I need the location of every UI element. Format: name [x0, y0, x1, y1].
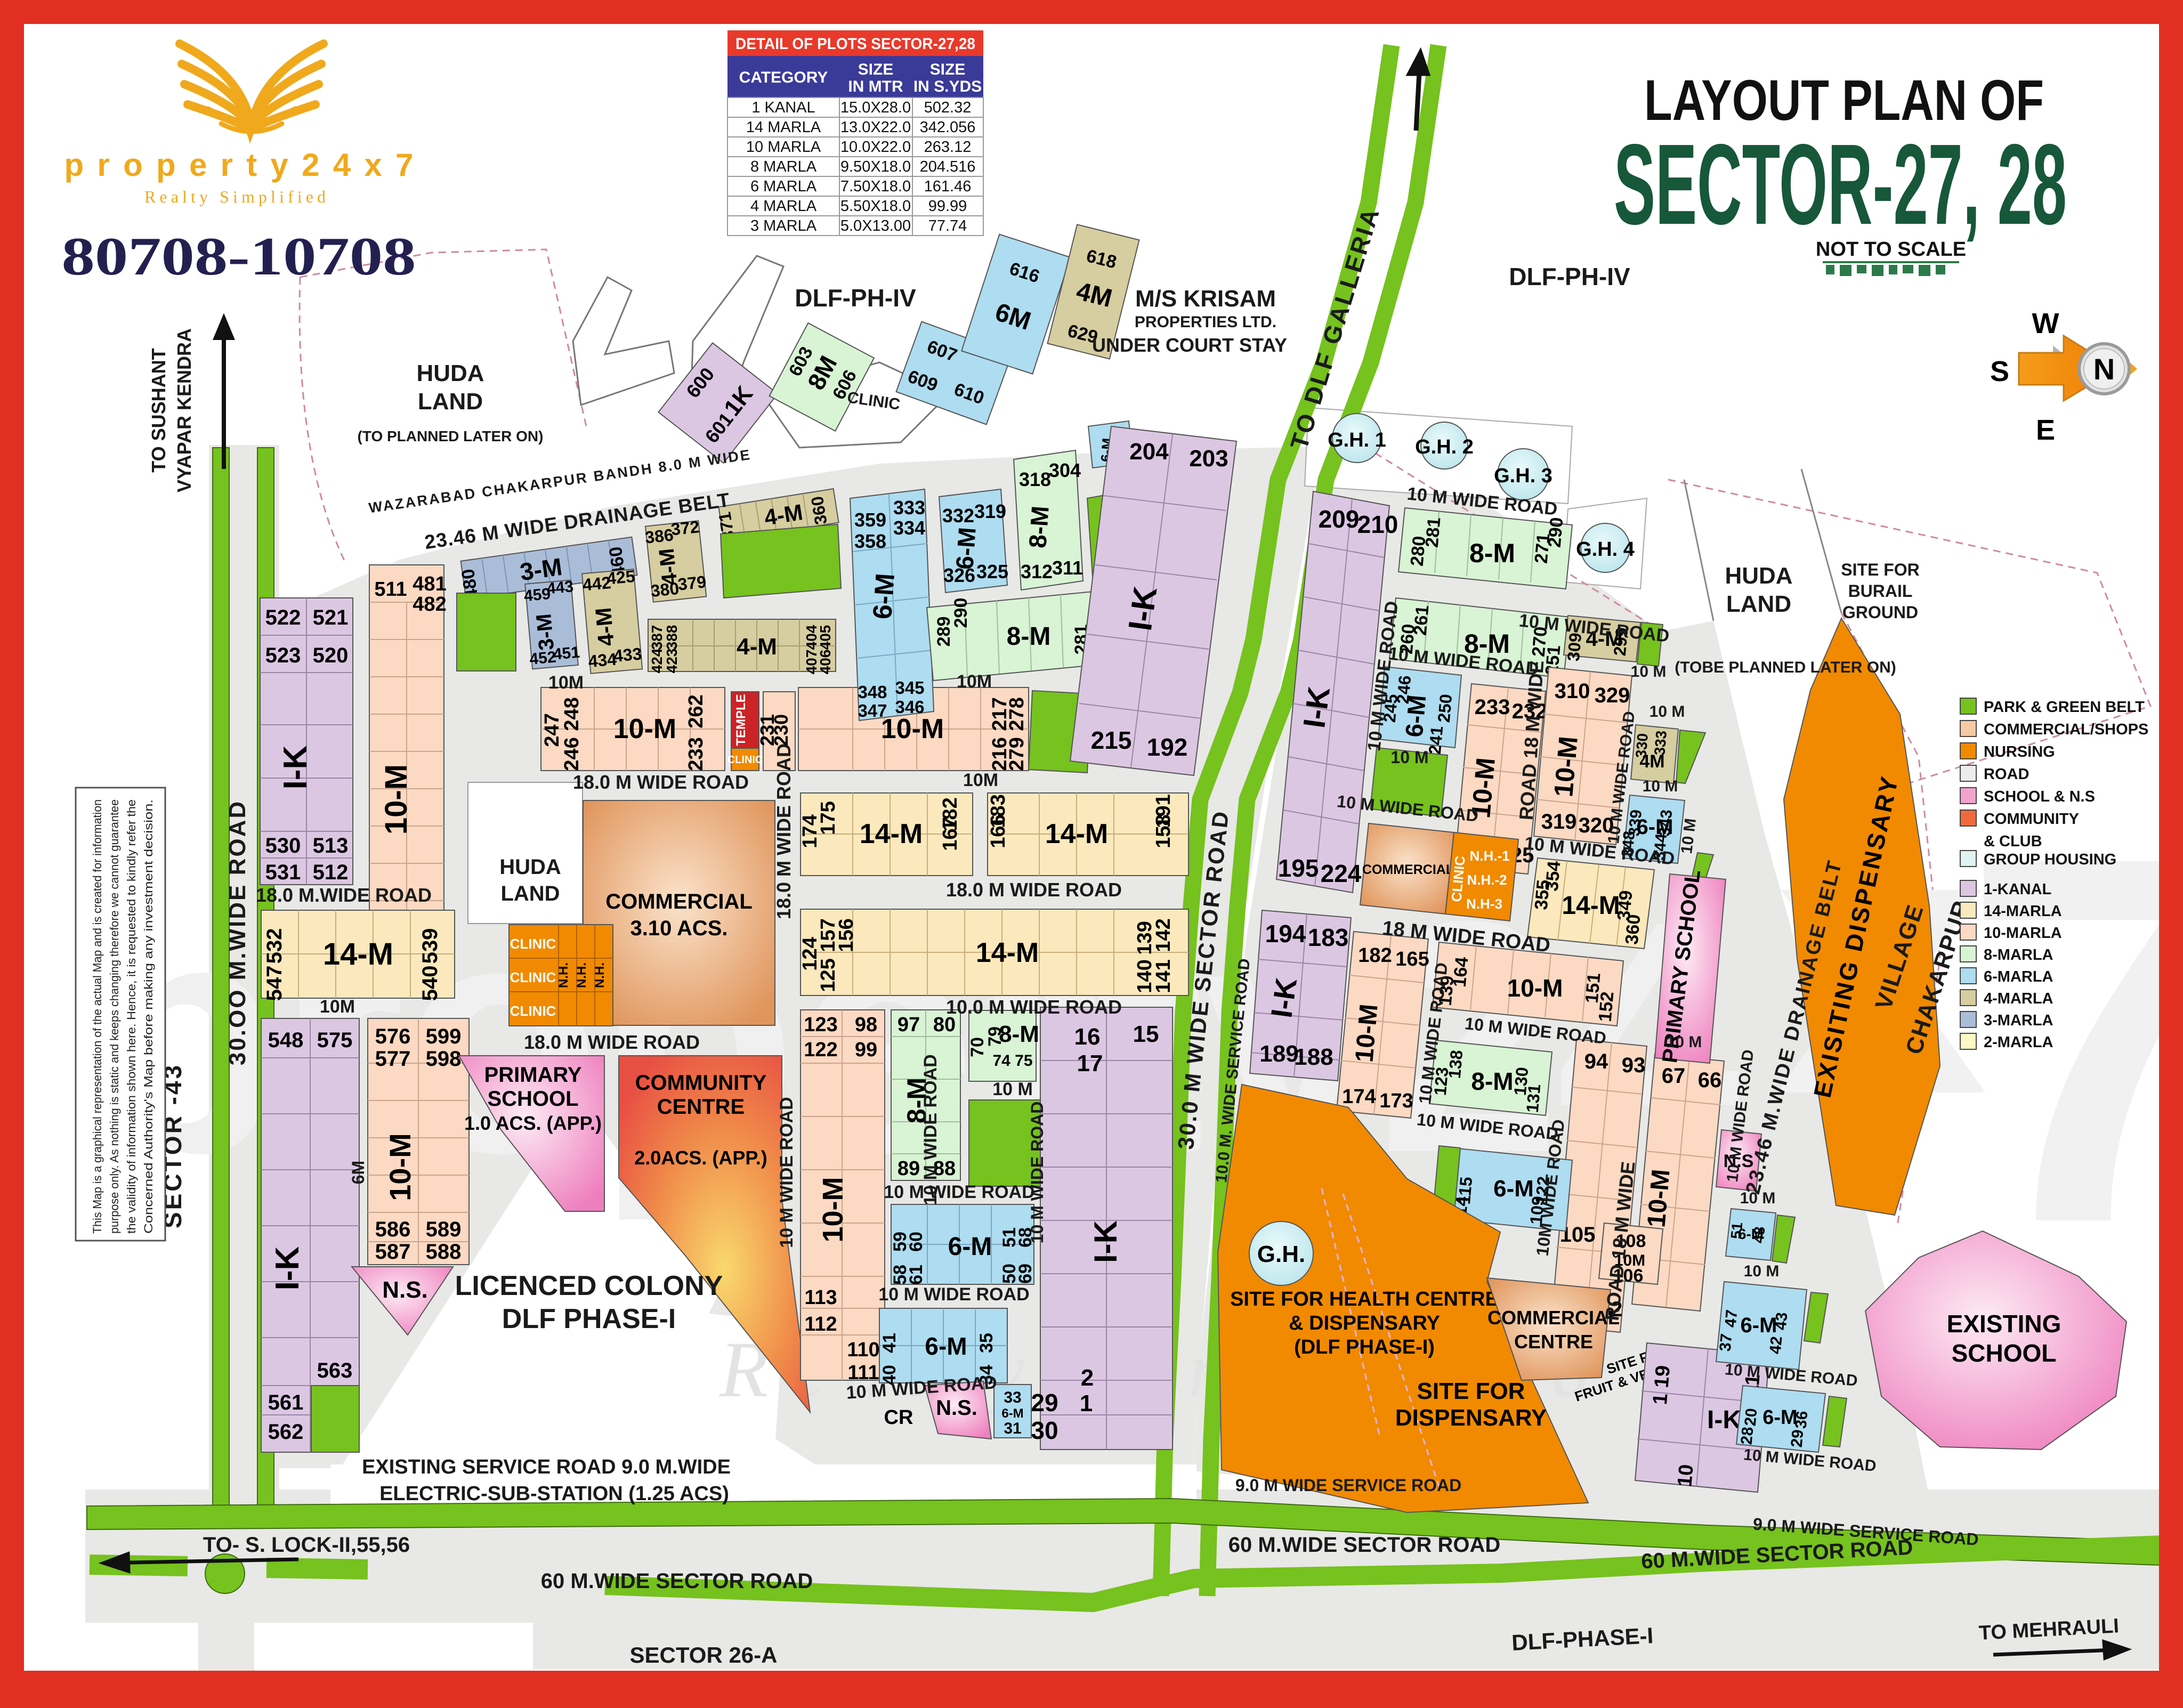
svg-text:3.10 ACS.: 3.10 ACS.: [630, 917, 727, 940]
svg-text:372: 372: [670, 517, 700, 539]
svg-text:174: 174: [1342, 1086, 1376, 1108]
svg-text:587: 587: [375, 1240, 411, 1264]
svg-text:380: 380: [650, 579, 680, 601]
svg-text:189: 189: [1259, 1041, 1298, 1067]
svg-text:93: 93: [1622, 1054, 1646, 1077]
svg-text:COMMERCIAL/SHOPS: COMMERCIAL/SHOPS: [1984, 721, 2148, 738]
svg-text:6-M: 6-M: [1001, 1406, 1023, 1421]
svg-text:purpose only. As nothing is st: purpose only. As nothing is static and k…: [108, 799, 121, 1234]
svg-text:18.0 M WIDE ROAD: 18.0 M WIDE ROAD: [573, 771, 749, 793]
svg-text:406: 406: [817, 650, 834, 675]
svg-text:LAND: LAND: [418, 388, 483, 415]
svg-text:386: 386: [644, 525, 674, 547]
svg-text:588: 588: [426, 1240, 462, 1264]
svg-text:HUDA: HUDA: [416, 360, 484, 386]
svg-text:10 M: 10 M: [1744, 1262, 1780, 1280]
svg-text:N.S.: N.S.: [382, 1277, 428, 1303]
svg-text:575: 575: [317, 1029, 353, 1052]
svg-text:513: 513: [313, 834, 349, 857]
svg-text:8-M: 8-M: [999, 1021, 1039, 1047]
svg-text:530: 530: [265, 834, 301, 857]
svg-text:599: 599: [426, 1025, 462, 1048]
svg-text:8-M: 8-M: [1469, 538, 1515, 568]
svg-text:164: 164: [1450, 956, 1473, 988]
svg-text:UNDER COURT STAY: UNDER COURT STAY: [1092, 334, 1287, 356]
svg-text:311: 311: [1052, 557, 1083, 579]
svg-text:29: 29: [1031, 1389, 1058, 1416]
svg-text:8-MARLA: 8-MARLA: [1984, 946, 2053, 964]
svg-text:& DISPENSARY: & DISPENSARY: [1289, 1312, 1440, 1334]
svg-text:99.99: 99.99: [928, 198, 967, 215]
svg-text:523: 523: [265, 644, 301, 667]
svg-text:29: 29: [1788, 1429, 1807, 1448]
svg-text:ELECTRIC-SUB-STATION (1.25 ACS: ELECTRIC-SUB-STATION (1.25 ACS): [379, 1483, 729, 1505]
svg-text:188: 188: [1294, 1044, 1333, 1070]
svg-text:347: 347: [858, 701, 887, 721]
svg-text:4-MARLA: 4-MARLA: [1984, 990, 2053, 1007]
svg-text:215: 215: [1091, 726, 1132, 754]
svg-text:10 MARLA: 10 MARLA: [746, 139, 821, 156]
svg-text:1 19: 1 19: [1649, 1364, 1675, 1405]
svg-text:405: 405: [817, 625, 834, 650]
svg-text:194: 194: [1265, 920, 1306, 948]
svg-text:DETAIL OF PLOTS SECTOR-27,28: DETAIL OF PLOTS SECTOR-27,28: [735, 35, 975, 53]
svg-text:246: 246: [561, 737, 583, 771]
svg-text:14-M: 14-M: [976, 937, 1039, 968]
svg-text:2: 2: [1081, 1365, 1094, 1391]
svg-text:30.OO M.WIDE ROAD: 30.OO M.WIDE ROAD: [224, 800, 250, 1065]
svg-text:15: 15: [1133, 1021, 1159, 1047]
svg-text:539: 539: [418, 928, 442, 964]
svg-text:SIZE: SIZE: [930, 61, 966, 78]
svg-text:(DLF PHASE-I): (DLF PHASE-I): [1294, 1336, 1435, 1358]
svg-text:I-K: I-K: [269, 1246, 306, 1290]
svg-text:123: 123: [804, 1014, 837, 1036]
svg-text:14-MARLA: 14-MARLA: [1984, 903, 2062, 920]
svg-text:175: 175: [817, 801, 839, 835]
svg-text:511: 511: [374, 578, 407, 601]
svg-text:SITE FOR: SITE FOR: [1841, 560, 1920, 579]
svg-text:262: 262: [685, 694, 707, 728]
svg-text:89: 89: [898, 1157, 920, 1180]
svg-text:SIZE: SIZE: [858, 61, 894, 78]
svg-text:342.056: 342.056: [920, 119, 976, 136]
svg-text:BURAIL: BURAIL: [1848, 581, 1913, 601]
svg-text:LAND: LAND: [1726, 591, 1791, 617]
svg-text:99: 99: [855, 1039, 877, 1061]
svg-text:358: 358: [854, 530, 886, 552]
svg-text:548: 548: [268, 1029, 304, 1052]
svg-text:346: 346: [895, 697, 924, 717]
svg-text:6-M: 6-M: [948, 1233, 992, 1261]
svg-text:512: 512: [313, 861, 349, 884]
svg-text:10-M: 10-M: [383, 1133, 417, 1201]
svg-text:28: 28: [1738, 1426, 1757, 1445]
svg-text:69: 69: [1015, 1264, 1036, 1284]
svg-text:586: 586: [375, 1218, 411, 1241]
svg-text:36: 36: [1792, 1410, 1812, 1429]
svg-text:156: 156: [835, 918, 858, 952]
svg-text:520: 520: [313, 644, 349, 667]
svg-text:G.H.: G.H.: [1257, 1241, 1305, 1267]
svg-text:204.516: 204.516: [920, 158, 976, 175]
svg-text:5.0X13.00: 5.0X13.00: [840, 217, 911, 234]
svg-text:561: 561: [268, 1391, 304, 1414]
svg-text:I-K: I-K: [1122, 584, 1165, 633]
svg-text:531: 531: [265, 861, 301, 884]
svg-text:10 M WIDE ROAD: 10 M WIDE ROAD: [878, 1284, 1029, 1305]
svg-text:279: 279: [1006, 737, 1028, 771]
svg-text:332: 332: [942, 505, 974, 527]
svg-text:354: 354: [1542, 860, 1565, 892]
svg-text:94: 94: [1584, 1050, 1608, 1073]
svg-text:HUDA: HUDA: [499, 855, 561, 879]
svg-text:318: 318: [1019, 468, 1051, 490]
svg-text:10.0X22.0: 10.0X22.0: [840, 139, 911, 156]
svg-text:333: 333: [893, 497, 925, 519]
svg-text:278: 278: [1006, 697, 1028, 731]
svg-text:10M: 10M: [548, 673, 584, 693]
svg-text:319: 319: [1541, 810, 1577, 833]
svg-text:522: 522: [265, 606, 301, 629]
svg-text:DLF PHASE-I: DLF PHASE-I: [502, 1304, 676, 1334]
svg-text:203: 203: [1189, 446, 1228, 472]
svg-text:329: 329: [1595, 684, 1630, 707]
svg-text:DISPENSARY: DISPENSARY: [1395, 1405, 1547, 1431]
svg-text:423: 423: [664, 649, 680, 674]
svg-text:248: 248: [561, 697, 583, 731]
svg-text:IN MTR: IN MTR: [848, 78, 903, 95]
svg-text:10-M: 10-M: [817, 1177, 849, 1242]
svg-text:4-M: 4-M: [737, 634, 777, 660]
svg-text:CLINIC: CLINIC: [510, 1003, 556, 1019]
svg-text:SECTOR-27, 28: SECTOR-27, 28: [1614, 120, 2067, 248]
svg-text:191: 191: [1152, 794, 1175, 828]
svg-text:N.S.: N.S.: [936, 1396, 977, 1420]
svg-text:10-M: 10-M: [881, 714, 944, 744]
svg-text:I-K: I-K: [277, 745, 314, 789]
svg-text:NURSING: NURSING: [1984, 743, 2055, 760]
svg-text:42: 42: [1767, 1335, 1786, 1355]
svg-text:598: 598: [426, 1047, 462, 1071]
svg-text:14-M: 14-M: [860, 819, 923, 849]
svg-text:M/S KRISAM: M/S KRISAM: [1135, 286, 1276, 312]
svg-text:the validity of information sh: the validity of information shown here. …: [125, 799, 138, 1234]
svg-text:451: 451: [552, 644, 580, 663]
svg-text:261: 261: [1410, 604, 1433, 636]
svg-text:TEMPLE: TEMPLE: [734, 694, 748, 746]
svg-text:E: E: [2036, 414, 2055, 446]
svg-text:G.H. 3: G.H. 3: [1494, 465, 1553, 487]
svg-text:8-M: 8-M: [1023, 505, 1054, 549]
svg-text:443: 443: [546, 578, 575, 597]
svg-text:10-M: 10-M: [1507, 974, 1563, 1002]
svg-text:(TOBE PLANNED LATER ON): (TOBE PLANNED LATER ON): [1675, 659, 1896, 676]
svg-text:481: 481: [413, 573, 446, 595]
svg-text:4-M: 4-M: [591, 606, 619, 647]
svg-text:HUDA: HUDA: [1725, 563, 1792, 589]
svg-text:312: 312: [1021, 561, 1053, 582]
svg-text:14 MARLA: 14 MARLA: [746, 119, 821, 136]
svg-text:502.32: 502.32: [924, 99, 972, 116]
svg-text:113: 113: [804, 1286, 837, 1309]
svg-text:250: 250: [1434, 693, 1456, 723]
svg-text:334: 334: [893, 517, 925, 539]
svg-text:131: 131: [1523, 1083, 1545, 1113]
svg-text:61: 61: [906, 1265, 926, 1285]
svg-text:N.H.: N.H.: [575, 962, 589, 988]
svg-text:10-M: 10-M: [613, 714, 676, 744]
svg-text:3-MARLA: 3-MARLA: [1984, 1012, 2053, 1029]
svg-text:425: 425: [606, 566, 636, 588]
svg-text:10M: 10M: [963, 770, 998, 790]
svg-text:SCHOOL & N.S: SCHOOL & N.S: [1984, 788, 2095, 805]
svg-text:173: 173: [1379, 1090, 1413, 1112]
svg-text:210: 210: [1357, 511, 1398, 538]
svg-text:161.46: 161.46: [924, 178, 972, 195]
svg-text:360: 360: [1622, 913, 1645, 945]
svg-text:263.12: 263.12: [924, 139, 972, 156]
svg-text:47: 47: [1722, 1309, 1741, 1328]
svg-text:SECTOR 26-A: SECTOR 26-A: [630, 1642, 778, 1667]
svg-text:35: 35: [976, 1333, 997, 1353]
svg-text:10M: 10M: [320, 997, 355, 1017]
svg-text:310: 310: [1555, 679, 1590, 703]
svg-text:6 MARLA: 6 MARLA: [750, 178, 817, 195]
svg-text:10-MARLA: 10-MARLA: [1984, 925, 2062, 942]
svg-text:192: 192: [1147, 733, 1188, 761]
svg-text:540: 540: [418, 966, 442, 1001]
svg-text:CR: CR: [884, 1406, 913, 1429]
svg-text:8 MARLA: 8 MARLA: [750, 158, 817, 175]
svg-text:14-M: 14-M: [1562, 892, 1620, 920]
svg-text:13.0X22.0: 13.0X22.0: [840, 119, 911, 136]
svg-text:1.0 ACS. (APP.): 1.0 ACS. (APP.): [464, 1112, 602, 1134]
svg-text:10M: 10M: [957, 671, 992, 692]
svg-text:N.H.: N.H.: [556, 962, 571, 988]
svg-text:SCHOOL: SCHOOL: [487, 1087, 578, 1111]
svg-text:GROUND: GROUND: [1842, 603, 1918, 622]
svg-text:COMMERCIAL: COMMERCIAL: [1362, 862, 1454, 877]
svg-text:37: 37: [1717, 1333, 1736, 1352]
svg-text:14-M: 14-M: [1045, 819, 1108, 849]
svg-text:424: 424: [649, 648, 665, 673]
svg-text:290: 290: [1545, 516, 1567, 548]
svg-text:PROPERTIES LTD.: PROPERTIES LTD.: [1135, 313, 1276, 331]
svg-text:290: 290: [951, 598, 971, 628]
svg-text:8-M: 8-M: [1471, 1067, 1513, 1095]
svg-text:10-M: 10-M: [1642, 1168, 1675, 1229]
svg-text:N: N: [2093, 352, 2115, 386]
svg-text:I-K: I-K: [1264, 976, 1303, 1020]
svg-text:G.H. 1: G.H. 1: [1328, 429, 1386, 451]
svg-text:EXISTING: EXISTING: [1947, 1310, 2061, 1338]
svg-text:CLINIC: CLINIC: [510, 936, 556, 952]
svg-text:10: 10: [1673, 1463, 1698, 1488]
svg-text:343: 343: [1656, 809, 1676, 837]
svg-text:10 M: 10 M: [1390, 748, 1428, 767]
svg-text:This Map is a graphical repres: This Map is a graphical representation o…: [91, 799, 104, 1234]
svg-text:325: 325: [976, 561, 1008, 582]
svg-text:N.H-3: N.H-3: [1466, 896, 1502, 912]
svg-text:Concerned Authority's Map befo: Concerned Authority's Map before making …: [142, 799, 155, 1234]
svg-text:CENTRE: CENTRE: [657, 1095, 745, 1119]
svg-text:TO- S. LOCK-II,55,56: TO- S. LOCK-II,55,56: [203, 1533, 410, 1557]
svg-text:I-K: I-K: [1297, 684, 1337, 730]
svg-text:183: 183: [1308, 924, 1349, 951]
svg-text:10-M: 10-M: [1350, 1003, 1383, 1064]
svg-text:17: 17: [1077, 1050, 1103, 1076]
svg-text:CLINIC: CLINIC: [510, 969, 556, 985]
svg-text:387: 387: [649, 625, 665, 650]
svg-text:10 M WIDE ROAD: 10 M WIDE ROAD: [884, 1182, 1034, 1202]
svg-text:15.0X28.0: 15.0X28.0: [840, 99, 911, 116]
svg-text:230: 230: [770, 714, 792, 746]
svg-text:182: 182: [1358, 944, 1392, 967]
svg-text:433: 433: [612, 644, 642, 666]
svg-text:33: 33: [1004, 1389, 1021, 1406]
svg-text:233: 233: [1475, 695, 1510, 719]
svg-text:2-MARLA: 2-MARLA: [1984, 1034, 2053, 1051]
svg-text:COMMERCIAL: COMMERCIAL: [1487, 1307, 1620, 1329]
svg-text:138: 138: [1445, 1049, 1467, 1079]
svg-text:6-M: 6-M: [1741, 1314, 1777, 1337]
svg-text:3 MARLA: 3 MARLA: [750, 217, 817, 234]
svg-text:10 M: 10 M: [1631, 663, 1667, 681]
svg-text:6-M: 6-M: [925, 1332, 967, 1360]
svg-text:N.H.-2: N.H.-2: [1467, 872, 1507, 888]
svg-text:CATEGORY: CATEGORY: [739, 69, 828, 86]
svg-text:10 M: 10 M: [1740, 1189, 1776, 1207]
svg-text:577: 577: [375, 1047, 411, 1071]
svg-text:10 M: 10 M: [992, 1079, 1033, 1099]
svg-text:43: 43: [1772, 1312, 1791, 1331]
svg-text:41: 41: [879, 1333, 900, 1353]
svg-text:326: 326: [943, 564, 975, 586]
svg-text:10 M: 10 M: [1667, 1033, 1702, 1051]
svg-text:576: 576: [375, 1025, 411, 1048]
svg-text:142: 142: [1152, 918, 1175, 952]
svg-text:204: 204: [1129, 439, 1169, 465]
svg-text:N.H.: N.H.: [593, 962, 607, 988]
svg-text:80708-10708: 80708-10708: [62, 226, 416, 287]
svg-text:563: 563: [317, 1359, 353, 1382]
svg-text:6-MARLA: 6-MARLA: [1984, 968, 2053, 985]
svg-text:16: 16: [1074, 1024, 1101, 1050]
svg-text:(TO PLANNED LATER ON): (TO PLANNED LATER ON): [358, 428, 544, 444]
svg-text:67: 67: [1662, 1064, 1686, 1088]
svg-text:247: 247: [541, 713, 563, 747]
svg-text:521: 521: [313, 606, 349, 629]
svg-text:NOT TO SCALE: NOT TO SCALE: [1816, 238, 1966, 261]
svg-text:98: 98: [855, 1014, 877, 1036]
svg-text:6-M: 6-M: [867, 572, 900, 620]
svg-text:COMMUNITY: COMMUNITY: [635, 1071, 767, 1095]
svg-text:562: 562: [268, 1420, 304, 1444]
svg-text:388: 388: [664, 625, 680, 650]
svg-text:VYAPAR KENDRA: VYAPAR KENDRA: [173, 328, 195, 492]
svg-text:547: 547: [263, 966, 286, 1001]
svg-text:10-M: 10-M: [1548, 735, 1583, 798]
svg-text:6-M: 6-M: [1493, 1176, 1534, 1202]
svg-text:ROAD: ROAD: [1984, 766, 2029, 783]
svg-text:359: 359: [854, 509, 886, 531]
svg-text:74 75: 74 75: [992, 1052, 1032, 1070]
svg-text:GROUP HOUSING: GROUP HOUSING: [1984, 851, 2116, 868]
svg-text:319: 319: [974, 500, 1006, 522]
svg-text:I-K: I-K: [1088, 1220, 1123, 1263]
svg-text:125: 125: [817, 958, 839, 992]
svg-text:348: 348: [858, 682, 887, 702]
svg-text:18.0 M WIDE ROAD: 18.0 M WIDE ROAD: [773, 743, 795, 919]
svg-text:1-KANAL: 1-KANAL: [1984, 881, 2051, 898]
svg-text:20: 20: [1742, 1407, 1761, 1427]
svg-text:CENTRE: CENTRE: [1514, 1331, 1593, 1353]
svg-text:PRIMARY: PRIMARY: [484, 1063, 582, 1087]
svg-text:SITE FOR HEALTH CENTRE: SITE FOR HEALTH CENTRE: [1230, 1288, 1499, 1310]
svg-text:30: 30: [1031, 1416, 1058, 1444]
svg-text:589: 589: [426, 1218, 462, 1241]
svg-text:10.0 M WIDE ROAD: 10.0 M WIDE ROAD: [946, 996, 1122, 1018]
svg-text:EXISTING SERVICE ROAD 9.0 M.WI: EXISTING SERVICE ROAD 9.0 M.WIDE: [362, 1456, 731, 1478]
svg-text:IN S.YDS: IN S.YDS: [913, 78, 982, 95]
svg-text:14-M: 14-M: [323, 937, 393, 972]
svg-text:195: 195: [1278, 854, 1319, 882]
svg-text:& CLUB: & CLUB: [1984, 833, 2042, 850]
svg-text:5.50X18.0: 5.50X18.0: [840, 198, 911, 215]
svg-text:122: 122: [804, 1039, 837, 1061]
svg-text:18.0 M.WIDE ROAD: 18.0 M.WIDE ROAD: [256, 884, 432, 906]
svg-text:66: 66: [1698, 1068, 1722, 1092]
svg-text:PARK & GREEN BELT: PARK & GREEN BELT: [1984, 699, 2145, 716]
svg-text:DLF-PH-IV: DLF-PH-IV: [795, 284, 916, 312]
svg-text:SITE FOR: SITE FOR: [1417, 1378, 1525, 1404]
svg-text:N.H.-1: N.H.-1: [1469, 848, 1509, 864]
svg-text:8-M: 8-M: [1007, 622, 1051, 651]
svg-text:31: 31: [1004, 1420, 1021, 1437]
svg-text:LAND: LAND: [500, 882, 560, 905]
svg-text:4M: 4M: [1639, 751, 1664, 772]
svg-text:379: 379: [677, 572, 707, 594]
svg-text:60 M.WIDE SECTOR ROAD: 60 M.WIDE SECTOR ROAD: [541, 1569, 813, 1593]
svg-text:6M: 6M: [349, 1161, 368, 1184]
svg-text:48: 48: [1750, 1226, 1768, 1244]
svg-text:18.0 M WIDE ROAD: 18.0 M WIDE ROAD: [946, 879, 1122, 901]
svg-text:10 M WIDE ROAD: 10 M WIDE ROAD: [1028, 1102, 1047, 1244]
svg-text:224: 224: [1321, 860, 1362, 887]
svg-text:110: 110: [847, 1339, 879, 1361]
svg-text:COMMUNITY: COMMUNITY: [1984, 811, 2079, 828]
svg-text:LICENCED COLONY: LICENCED COLONY: [455, 1270, 723, 1301]
svg-text:G.H. 4: G.H. 4: [1576, 538, 1635, 561]
svg-text:TO SUSHANT: TO SUSHANT: [148, 348, 169, 472]
svg-text:532: 532: [263, 928, 286, 964]
svg-text:G.H. 2: G.H. 2: [1415, 436, 1474, 458]
svg-text:1: 1: [1080, 1390, 1093, 1416]
svg-text:183: 183: [987, 794, 1009, 828]
svg-text:209: 209: [1319, 505, 1360, 533]
svg-text:165: 165: [1395, 948, 1429, 970]
svg-text:DLF-PH-IV: DLF-PH-IV: [1509, 263, 1630, 290]
svg-text:I-K: I-K: [1707, 1406, 1741, 1434]
svg-text:10 M WIDE ROAD: 10 M WIDE ROAD: [777, 1097, 797, 1248]
svg-text:345: 345: [895, 678, 924, 698]
svg-text:2.0ACS. (APP.): 2.0ACS. (APP.): [634, 1147, 767, 1169]
svg-text:9.50X18.0: 9.50X18.0: [840, 158, 911, 175]
svg-text:18.0 M WIDE ROAD: 18.0 M WIDE ROAD: [524, 1031, 700, 1053]
svg-text:7.50X18.0: 7.50X18.0: [840, 178, 911, 195]
svg-text:60: 60: [906, 1232, 926, 1252]
